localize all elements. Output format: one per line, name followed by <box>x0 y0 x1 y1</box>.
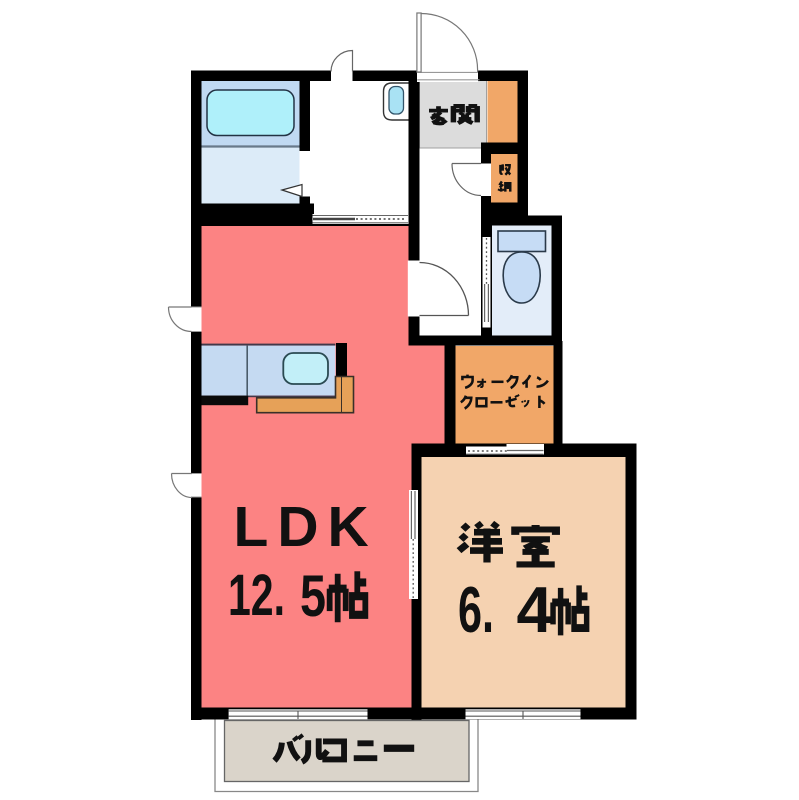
svg-text:5: 5 <box>300 564 326 629</box>
svg-text:12.: 12. <box>228 563 285 628</box>
svg-text:4: 4 <box>517 573 553 646</box>
svg-text:6.: 6. <box>458 573 494 646</box>
svg-text:LDK: LDK <box>234 495 378 559</box>
